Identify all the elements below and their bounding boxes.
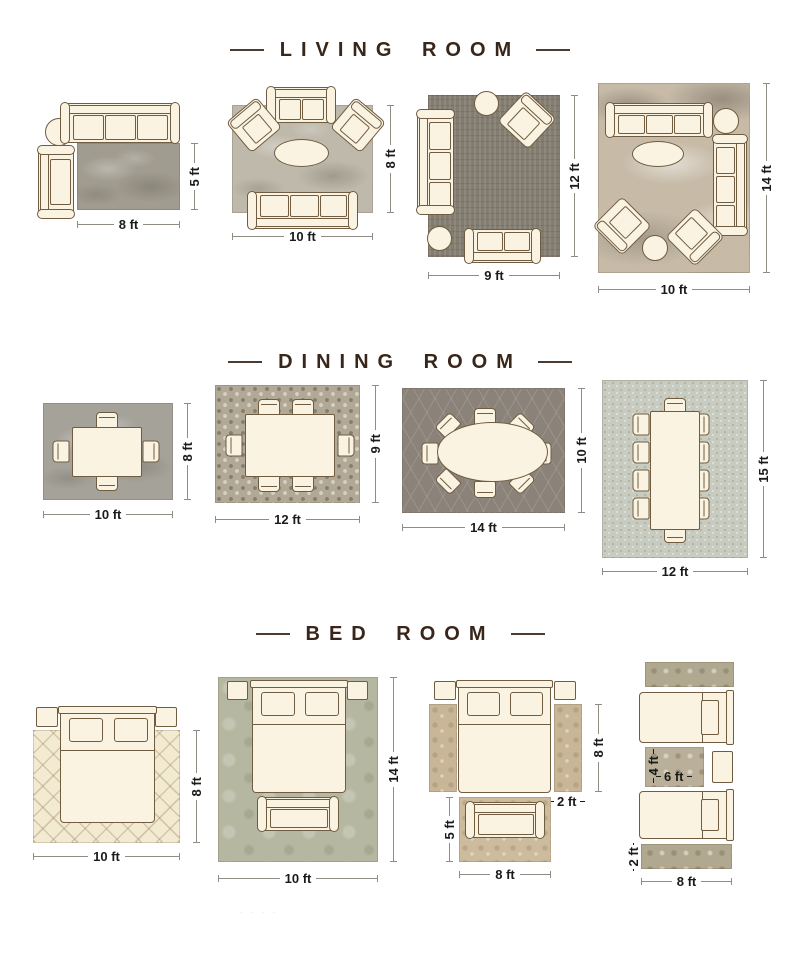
runner-rug <box>645 662 734 687</box>
runner-width-dimension: 8 ft <box>641 873 732 889</box>
rug-size-guide: LIVING ROOM 8 ft 5 ft <box>0 0 800 978</box>
bedroom-layout-twin-beds: 4 ft 6 ft 2 ft 8 ft <box>0 0 800 978</box>
nightstand <box>712 751 733 783</box>
twin-bed <box>639 791 733 839</box>
twin-bed <box>639 692 733 743</box>
watermark: · · · · <box>240 908 278 917</box>
runner-rug <box>641 844 732 869</box>
accent-rug-width-dimension: 6 ft <box>656 769 692 783</box>
runner-height-dimension: 2 ft <box>626 843 641 871</box>
